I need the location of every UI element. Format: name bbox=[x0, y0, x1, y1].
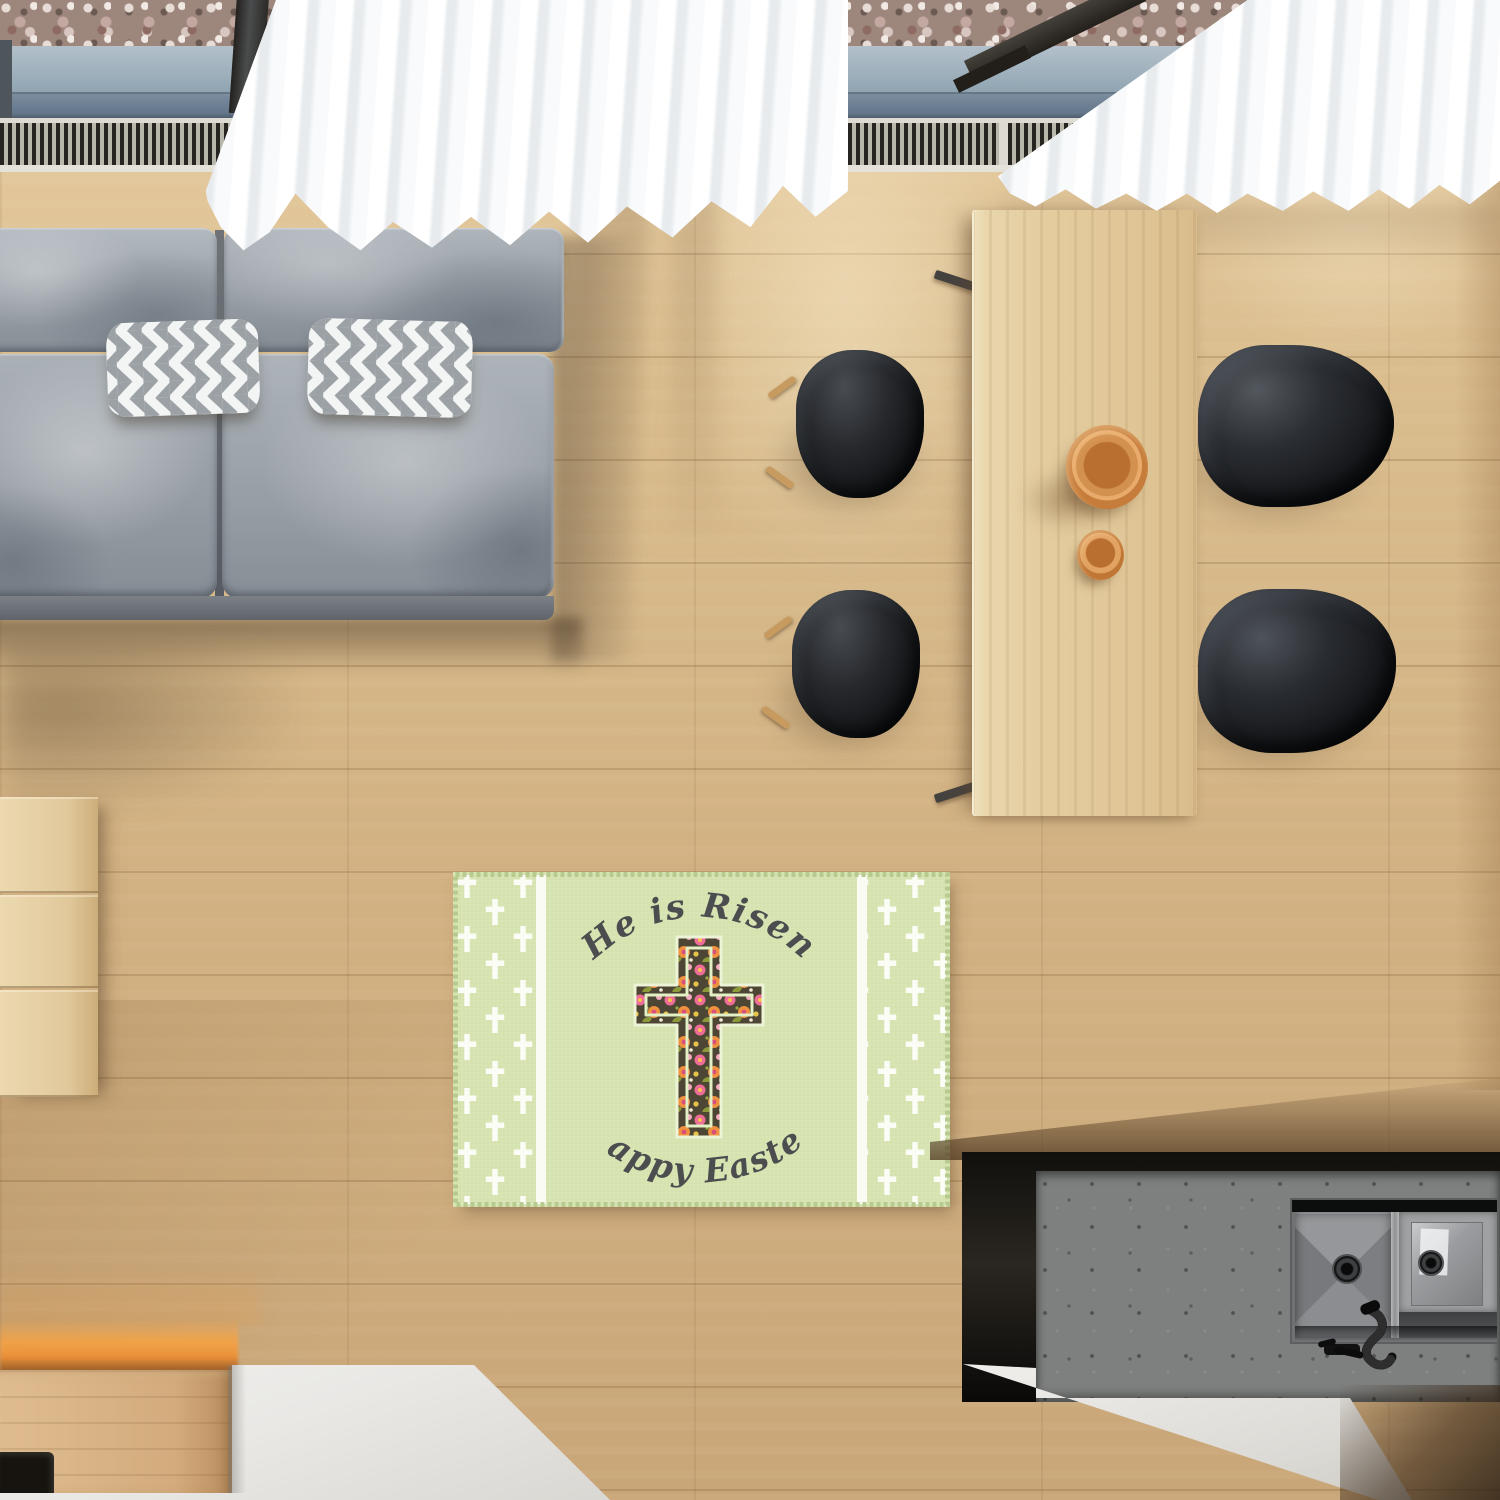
floor-shadow-corner bbox=[1340, 1385, 1500, 1500]
sink-drain-right bbox=[1418, 1250, 1444, 1276]
faucet bbox=[1318, 1300, 1428, 1395]
chevron-pillow-right bbox=[307, 318, 474, 419]
faucet-arm bbox=[1338, 1350, 1360, 1355]
living-room-top-view: He is Risen Happy Easter bbox=[0, 0, 1500, 1500]
sofa-side-shadow bbox=[552, 238, 638, 662]
sink-drain-left bbox=[1332, 1254, 1362, 1284]
dining-chair-left-bottom bbox=[792, 590, 920, 738]
chevron-pillow-left bbox=[105, 318, 260, 417]
kitchen-island-side-face bbox=[228, 1365, 246, 1493]
dining-chair-left-top bbox=[796, 350, 924, 498]
sideboard bbox=[0, 797, 98, 1097]
floor-shade-right-edge bbox=[1455, 160, 1500, 1090]
faucet-coil bbox=[1366, 1310, 1392, 1365]
easter-rug: He is Risen Happy Easter bbox=[453, 872, 950, 1207]
under-cabinet-glow bbox=[0, 1318, 238, 1372]
glow-floor-tint bbox=[0, 1256, 260, 1324]
chevron-pattern bbox=[105, 318, 260, 417]
sofa-corner-shadow bbox=[0, 640, 300, 810]
sideboard-drawer bbox=[0, 990, 98, 1097]
cooktop bbox=[0, 1452, 54, 1500]
chevron-pattern bbox=[307, 318, 474, 419]
sink-right-compartment bbox=[1399, 1212, 1497, 1312]
sideboard-drawer bbox=[0, 895, 98, 988]
sink-back-gap bbox=[1292, 1200, 1497, 1212]
copper-bowl-large bbox=[1066, 425, 1148, 509]
sideboard-drawer bbox=[0, 797, 98, 893]
window-frame-corner bbox=[0, 40, 12, 120]
sofa-front-edge bbox=[0, 596, 554, 620]
copper-bowl-small bbox=[1077, 530, 1124, 580]
